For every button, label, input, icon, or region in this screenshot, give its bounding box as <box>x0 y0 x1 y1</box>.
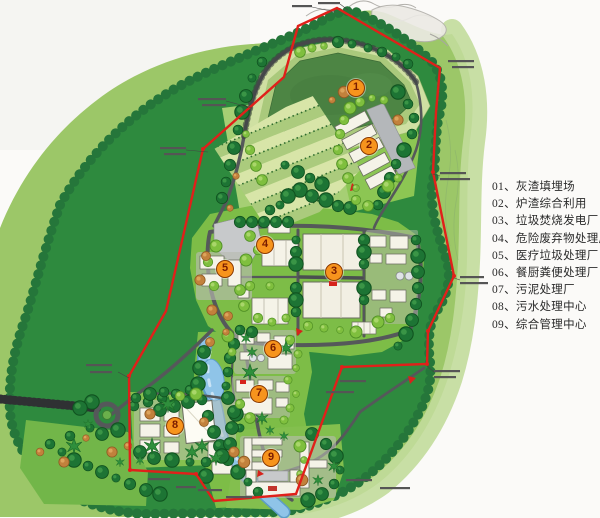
marker-07-sludge[interactable]: 7 <box>250 385 268 403</box>
site-plan-canvas: 1 2 3 4 5 6 7 8 9 01、灰渣填埋场 02、炉渣综合利用 03、… <box>0 0 600 518</box>
legend-item-04: 04、危险废弃物处理厂 <box>492 231 598 248</box>
marker-04-hazardous-waste[interactable]: 4 <box>256 236 274 254</box>
marker-06-kitchen-waste[interactable]: 6 <box>264 340 282 358</box>
legend-item-01: 01、灰渣填埋场 <box>492 179 598 196</box>
legend: 01、灰渣填埋场 02、炉渣综合利用 03、垃圾焚烧发电厂 04、危险废弃物处理… <box>492 179 598 334</box>
legend-item-07: 07、污泥处理厂 <box>492 282 598 299</box>
marker-02-slag[interactable]: 2 <box>360 137 378 155</box>
legend-item-06: 06、餐厨粪便处理厂 <box>492 265 598 282</box>
legend-item-08: 08、污水处理中心 <box>492 299 598 316</box>
marker-08-sewage[interactable]: 8 <box>166 417 184 435</box>
legend-item-09: 09、综合管理中心 <box>492 317 598 334</box>
marker-09-management[interactable]: 9 <box>262 449 280 467</box>
legend-item-03: 03、垃圾焚烧发电厂 <box>492 213 598 230</box>
marker-03-incineration[interactable]: 3 <box>325 263 343 281</box>
marker-01-landfill[interactable]: 1 <box>347 79 365 97</box>
legend-item-05: 05、医疗垃圾处理厂 <box>492 248 598 265</box>
marker-05-medical-waste[interactable]: 5 <box>216 260 234 278</box>
legend-item-02: 02、炉渣综合利用 <box>492 196 598 213</box>
